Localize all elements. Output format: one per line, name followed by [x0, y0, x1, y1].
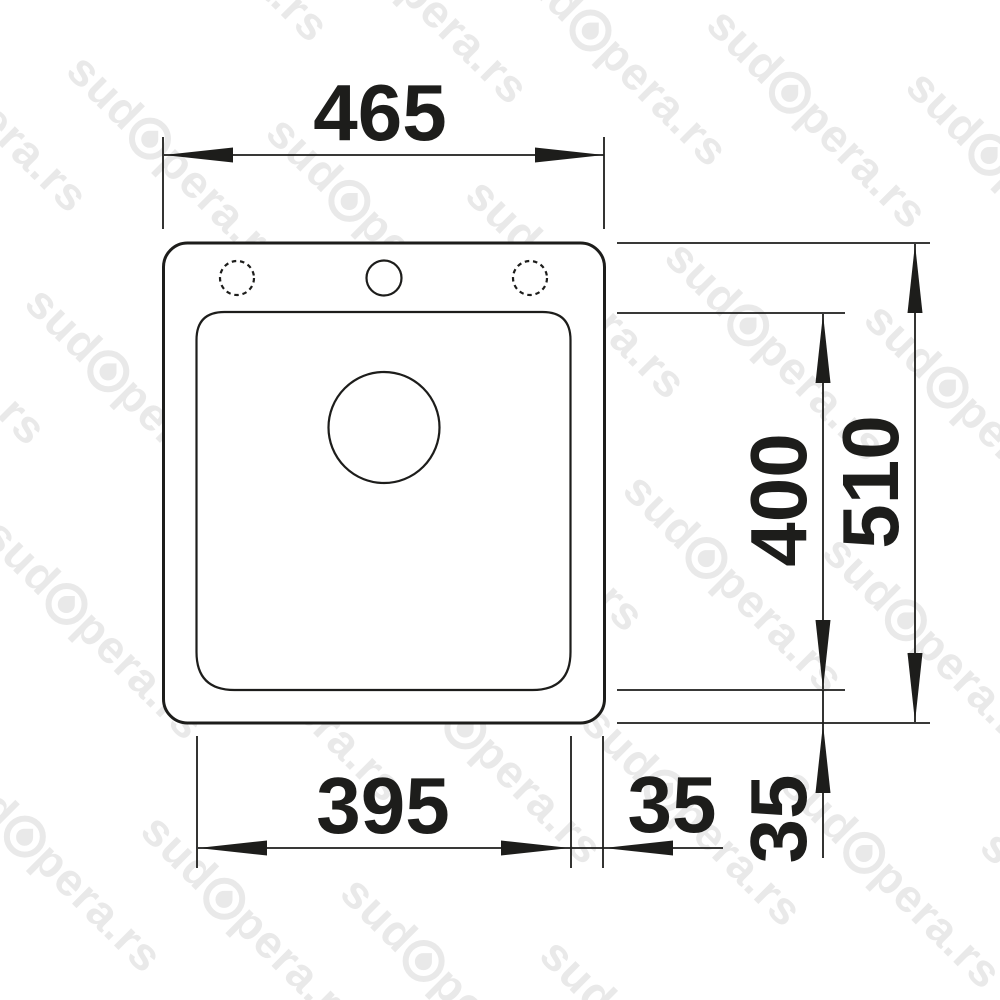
arrow-510-top — [908, 244, 923, 313]
dim-label-overall-depth: 510 — [831, 415, 911, 548]
arrow-510-bottom — [908, 653, 923, 722]
technical-drawing-page: sudpera.rssudpera.rssudpera.rssudpera.rs… — [0, 0, 1000, 1000]
dim-label-bowl-depth: 400 — [739, 433, 819, 566]
arrow-395-right — [501, 841, 570, 856]
arrow-465-left — [164, 148, 233, 163]
arrow-400-bottom — [816, 620, 831, 689]
arrow-465-right — [535, 148, 604, 163]
dim-label-overall-width: 465 — [313, 73, 446, 153]
dim-label-bowl-to-edge-right: 35 — [628, 765, 717, 845]
arrow-395-left — [198, 841, 267, 856]
dim-label-bowl-to-edge-bottom: 35 — [739, 775, 819, 864]
arrow-400-top — [816, 314, 831, 383]
dim-label-bowl-width: 395 — [316, 766, 449, 846]
